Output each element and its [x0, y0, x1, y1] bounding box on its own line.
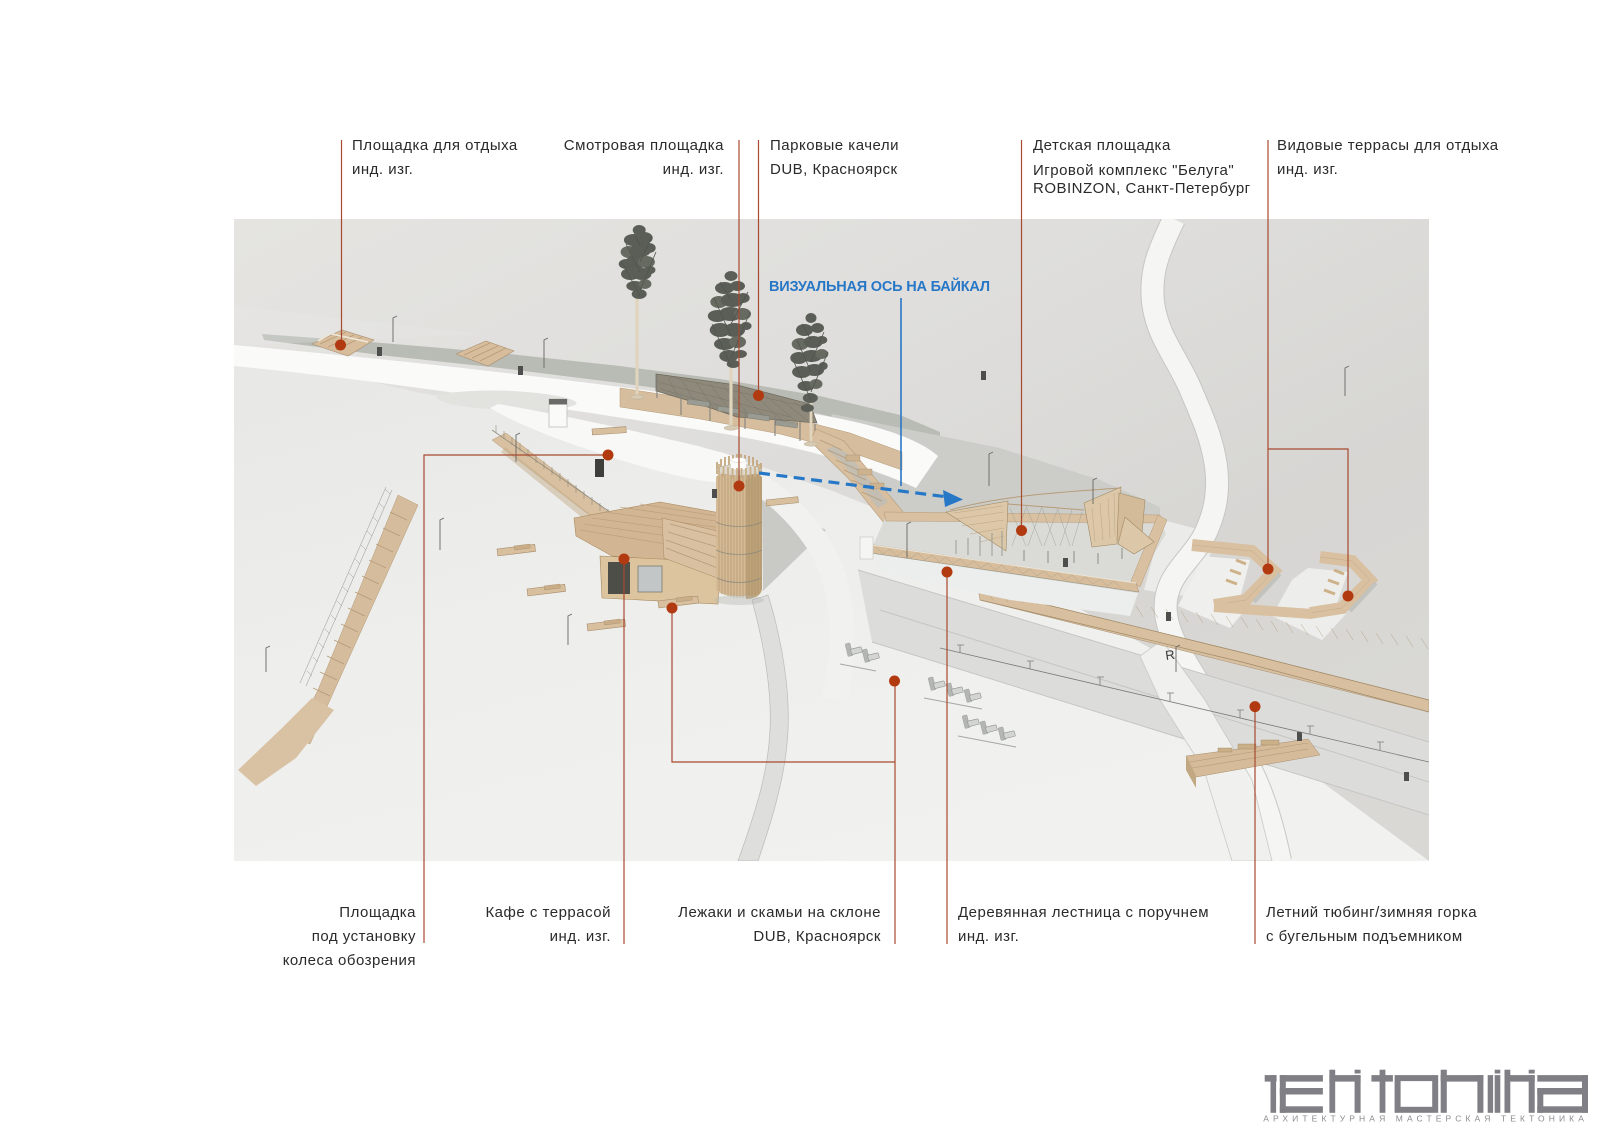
svg-text:АРХИТЕКТУРНАЯ МАСТЕРСКАЯ ТЕКТО: АРХИТЕКТУРНАЯ МАСТЕРСКАЯ ТЕКТОНИКА: [1263, 1114, 1588, 1124]
